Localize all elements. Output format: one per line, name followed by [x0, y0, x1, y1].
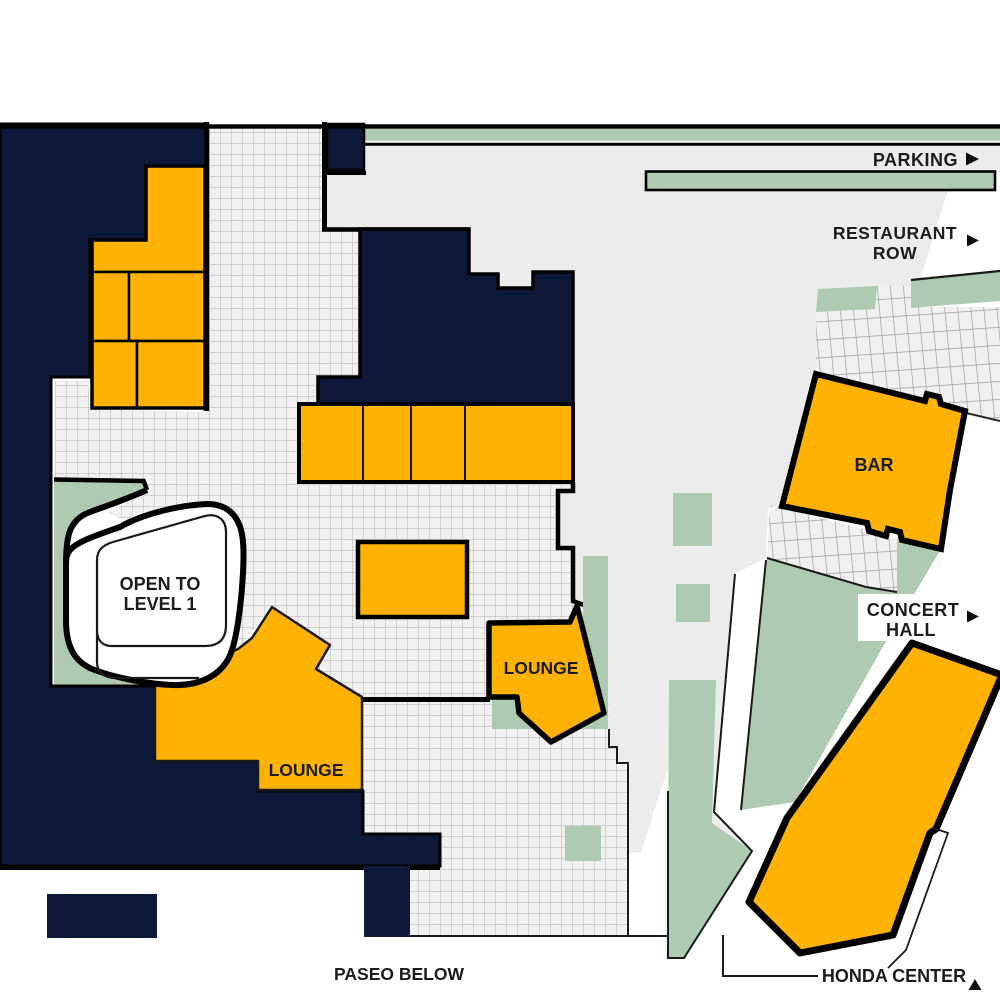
svg-text:HALL: HALL — [886, 620, 936, 640]
svg-text:PASEO BELOW: PASEO BELOW — [334, 964, 464, 984]
svg-text:PARKING: PARKING — [873, 150, 958, 170]
svg-text:RESTAURANT: RESTAURANT — [833, 223, 957, 243]
svg-text:HONDA CENTER: HONDA CENTER — [822, 966, 966, 986]
svg-text:ROW: ROW — [873, 243, 917, 263]
svg-text:LOUNGE: LOUNGE — [269, 760, 344, 780]
svg-text:LEVEL 1: LEVEL 1 — [124, 594, 197, 614]
svg-text:BAR: BAR — [855, 455, 894, 475]
svg-text:OPEN TO: OPEN TO — [120, 574, 201, 594]
svg-text:CONCERT: CONCERT — [867, 600, 960, 620]
svg-text:LOUNGE: LOUNGE — [504, 658, 579, 678]
